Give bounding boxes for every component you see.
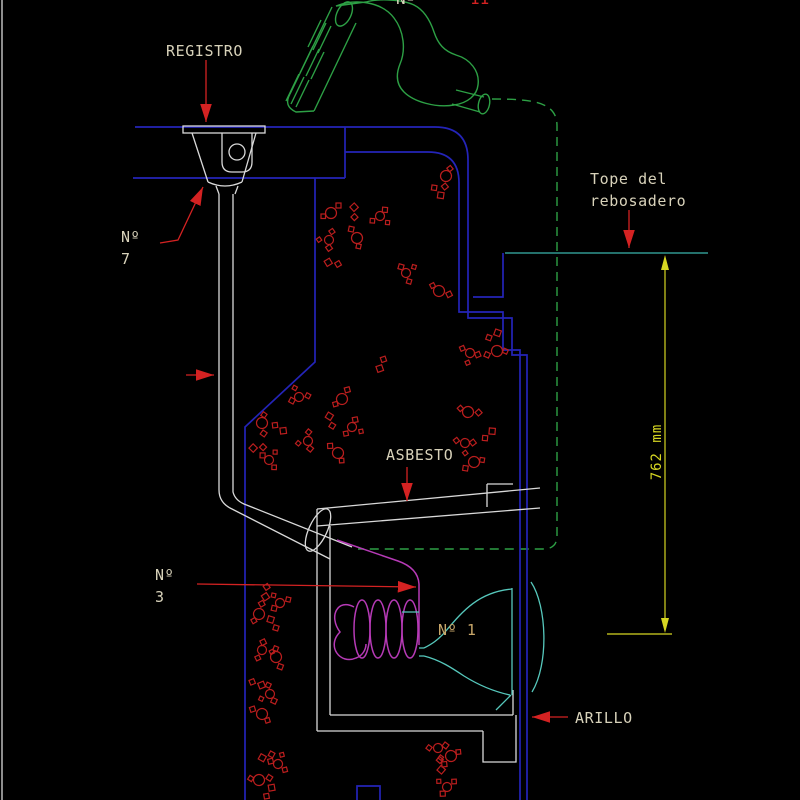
- arillo-ring-arc: [531, 582, 544, 692]
- clipped-top-label: Nº 11: [396, 0, 415, 8]
- overflow-stub: [473, 253, 503, 297]
- asbesto-sheet-line: [317, 488, 540, 509]
- burner-bell-cyan: [402, 582, 544, 710]
- burner-assembly-green: [286, 0, 491, 115]
- leader-arrows-red: [160, 60, 629, 717]
- thermostat-coil-magenta: [334, 540, 419, 660]
- hatch-marks: [245, 165, 508, 799]
- asbesto-label: ASBESTO: [386, 444, 453, 466]
- arillo-label: ARILLO: [575, 707, 633, 729]
- n3-label: Nº3: [155, 564, 174, 608]
- dimension-label: 762 mm: [646, 387, 668, 517]
- tope-rebosadero-label: Tope delrebosadero: [590, 168, 686, 212]
- flue-collar: [483, 715, 516, 762]
- n1-label: Nº 1: [438, 619, 477, 641]
- n3-arrow: [197, 584, 416, 587]
- bottom-notch: [357, 786, 380, 800]
- dim-arrow-up: [661, 255, 669, 270]
- n7-arrow: [160, 187, 203, 243]
- registro-label: REGISTRO: [166, 40, 243, 62]
- cad-linework: [0, 0, 800, 800]
- cad-drawing-canvas: Nº 11 REGISTRO Nº7 Tope delrebosadero AS…: [0, 0, 800, 800]
- n7-label: Nº7: [121, 226, 140, 270]
- registro-fixture: [183, 126, 265, 194]
- asbesto-sheet-and-box: [317, 484, 540, 762]
- dim-arrow-down: [661, 618, 669, 633]
